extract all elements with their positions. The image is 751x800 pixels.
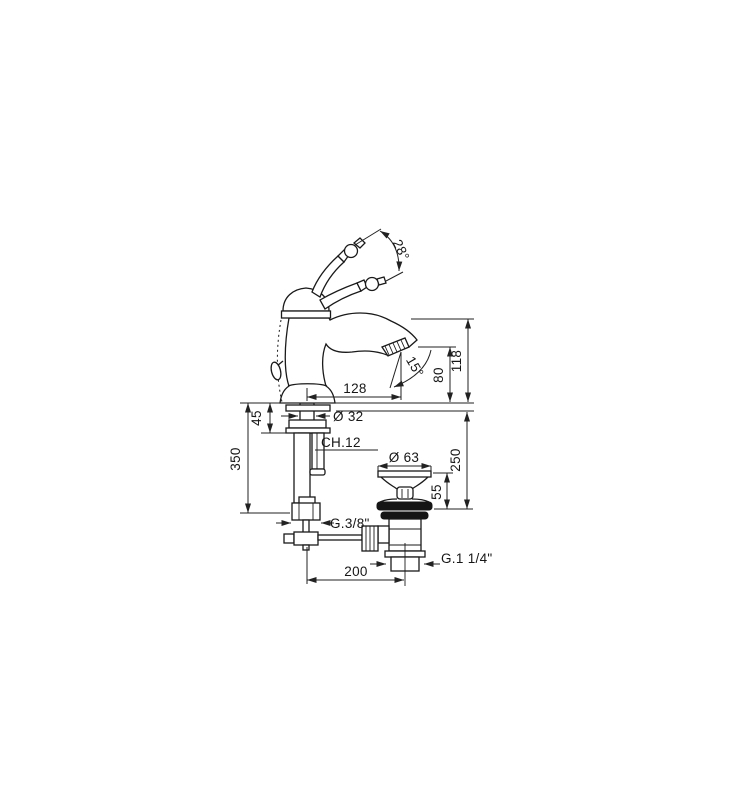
dim-waste-drop: 250 [448,448,463,471]
dim-hose-thread: G.3/8" [330,516,370,531]
waste-cap-top [378,471,431,477]
handle-lever-lowered [320,277,386,309]
dim-waste-cap-height: 55 [429,484,444,500]
waste-cap-stem [397,487,413,499]
rod-housing-end [310,469,325,475]
dim-handle-angle: 28° [390,237,413,263]
dim-spout-reach: 128 [343,381,366,396]
cap-band [282,311,331,318]
linkage-cross-fitting [294,532,318,545]
waste-gasket-lower [381,512,428,519]
dim-waste-thread: G.1 1/4" [441,551,492,566]
hose-hex-nut [292,503,320,520]
pop-up-waste-assembly [362,471,432,586]
dim-wrench-size: CH.12 [321,435,361,450]
dim-deck-clamp: 45 [249,410,264,426]
base-washer [286,405,330,411]
dim-waste-cap-diameter: Ø 63 [389,450,419,465]
waste-side-port [378,526,389,543]
dim-outlet-height: 80 [431,367,446,383]
horizontal-pop-up-rod [318,535,362,540]
faucet-technical-drawing: 28° 15° 128 80 118 45 Ø 32 CH.12 350 Ø 6… [0,0,751,800]
linkage-end-cap [284,534,294,543]
linkage-rod [303,520,309,533]
handle-levers [312,238,386,309]
waste-gasket-upper [377,502,432,510]
dim-overall-height: 118 [449,350,464,372]
dim-shank-diameter: Ø 32 [333,409,363,424]
dim-rod-offset: 200 [344,564,367,579]
hidden-outline [277,320,282,402]
faucet-technical-drawing-page: 28° 15° 128 80 118 45 Ø 32 CH.12 350 Ø 6… [0,0,751,800]
mounting-locknut [289,420,326,428]
dim-hose-drop: 350 [228,447,243,470]
dim-spout-angle: 15° [403,354,427,380]
pop-up-lift-knob [269,361,283,381]
braided-supply-hose [294,433,310,503]
clamp-plate [286,428,330,433]
